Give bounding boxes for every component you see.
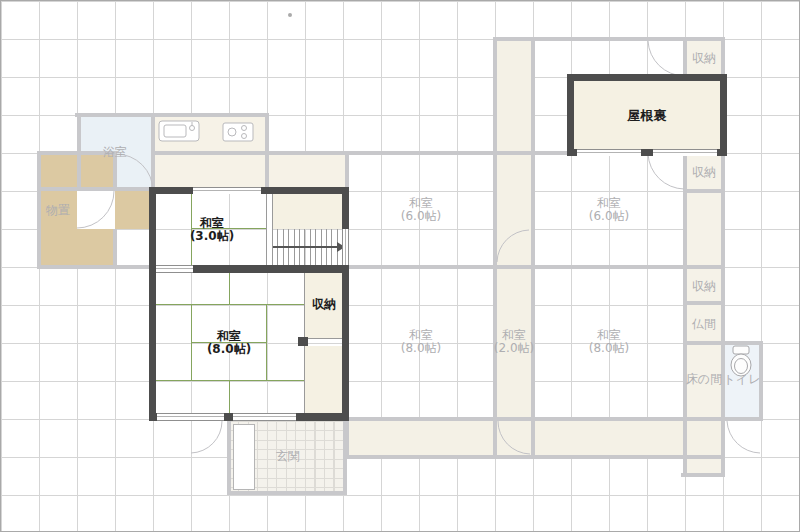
room-label-closet: 収納 xyxy=(312,298,336,311)
wall xyxy=(567,74,574,156)
ghost-room-label-closet-r2: 収納 xyxy=(692,280,716,293)
window xyxy=(157,413,224,421)
sink-icon xyxy=(159,121,199,141)
tatami-line xyxy=(229,381,230,413)
stove-icon xyxy=(223,123,253,141)
wall xyxy=(567,74,727,81)
opening xyxy=(342,229,349,265)
window xyxy=(233,413,296,421)
ghost-room-label-washitsu6b: 和室(6.0帖) xyxy=(589,197,629,223)
door-arc xyxy=(191,421,222,453)
tatami-line xyxy=(156,380,305,381)
tatami-line xyxy=(229,273,230,304)
tatami-line xyxy=(191,305,192,380)
window xyxy=(653,149,717,156)
window xyxy=(193,187,261,194)
stairs-edge xyxy=(266,194,273,265)
stray-dot xyxy=(288,13,292,17)
closet-boundary xyxy=(305,338,342,339)
stairs-direction-line xyxy=(273,246,337,248)
ghost-room-label-butsuma: 仏間 xyxy=(692,318,716,331)
room-label-washitsu3: 和室(3.0帖) xyxy=(190,217,234,243)
window xyxy=(577,149,641,156)
tatami-line xyxy=(156,304,305,305)
wall xyxy=(342,187,349,421)
room-label-attic: 屋根裏 xyxy=(628,109,667,122)
door-arc xyxy=(648,154,684,189)
door-arc xyxy=(727,421,760,453)
ghost-room-label-bath: 浴室 xyxy=(103,146,127,159)
sliding-door xyxy=(156,265,193,273)
door-arc xyxy=(498,421,530,454)
ghost-room-label-toilet: トイレ xyxy=(724,373,761,386)
ghost-room-label-storage: 物置 xyxy=(46,204,70,217)
oshiire-floor xyxy=(305,346,342,413)
room-label-washitsu8: 和室(8.0帖) xyxy=(207,330,251,356)
ghost-room-label-washitsu2: 和室(2.0帖) xyxy=(494,329,534,355)
wall xyxy=(720,74,727,156)
stair-landing-floor xyxy=(271,194,342,229)
door-arc xyxy=(77,191,114,228)
ghost-room-label-genkan: 玄関 xyxy=(276,450,300,463)
wall xyxy=(298,337,308,346)
ghost-room-label-tokonoma: 床の間 xyxy=(686,373,722,386)
door-arc xyxy=(116,154,153,191)
ghost-room-label-washitsu8a: 和室(8.0帖) xyxy=(401,329,441,355)
floorplan-canvas[interactable]: 浴室 物置 和室(6.0帖) 和室(6.0帖) 和室(8.0帖) 和室(2.0帖… xyxy=(0,0,800,532)
ghost-room-label-closet-r1: 収納 xyxy=(692,166,716,179)
ghost-room-label-washitsu8b: 和室(8.0帖) xyxy=(589,329,629,355)
tatami-line xyxy=(266,305,267,380)
ghost-room-label-closet-tr: 収納 xyxy=(692,52,716,65)
ghost-room-label-washitsu6a: 和室(6.0帖) xyxy=(401,197,441,223)
door-arc xyxy=(648,41,684,76)
door-arc xyxy=(497,230,529,262)
wall xyxy=(149,187,156,421)
